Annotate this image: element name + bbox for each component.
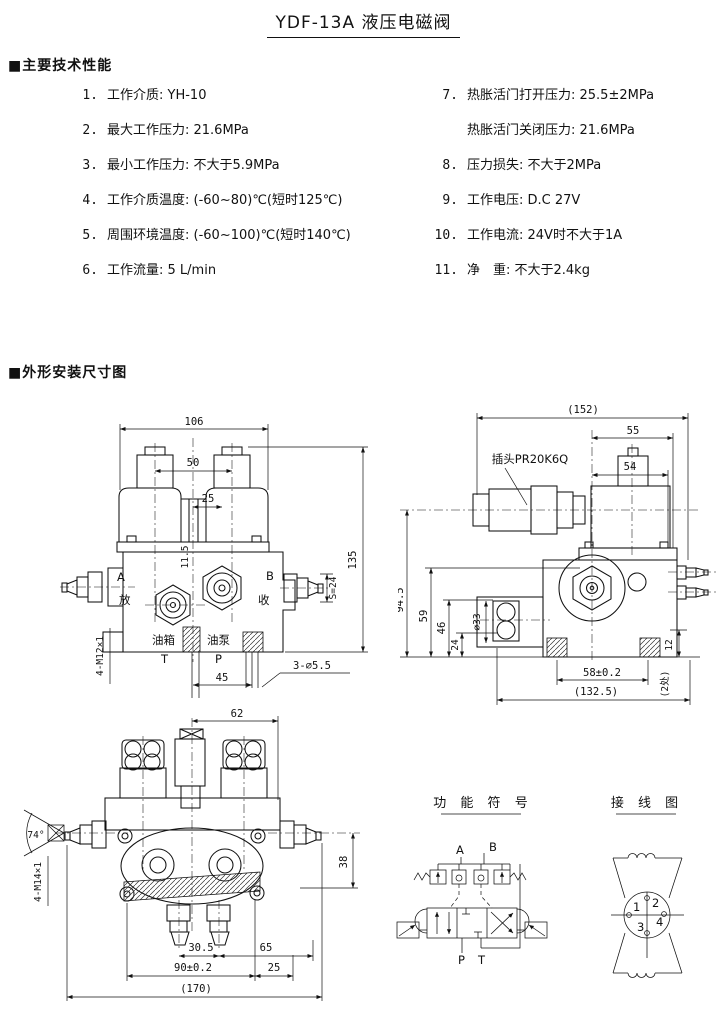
spec-item: 6.工作流量: 5 L/min	[72, 263, 412, 298]
dim-94-5: 94.5	[398, 587, 406, 612]
symbol-a-label: A	[456, 843, 464, 857]
port-b-label: B	[266, 569, 274, 583]
side-view-drawing: (152) 55 54 插头PR20K6Q 94.5 59 46 24 ∅33 …	[398, 395, 727, 707]
dim-90: 90±0.2	[174, 962, 212, 974]
symbol-p-label: P	[458, 953, 465, 967]
pin-3-label: 3	[637, 920, 644, 934]
specs-section-header: ■主要技术性能	[8, 55, 112, 75]
dim-thread-m14: 4-M14×1	[33, 862, 44, 902]
right-fittings	[677, 566, 708, 599]
pin-2-label: 2	[652, 896, 659, 910]
pilot-lines	[450, 884, 492, 908]
coil-symbols	[613, 854, 682, 978]
plug-label: 插头PR20K6Q	[492, 452, 568, 466]
wiring-diagram-drawing: 接 线 图 1 2 3 4	[595, 790, 727, 995]
dim-65: 65	[260, 942, 273, 954]
dim-11-5: 11.5	[180, 546, 191, 569]
spec-item: 9.工作电压: D.C 27V	[432, 193, 722, 228]
spec-list-right: 7.热胀活门打开压力: 25.5±2MPa 热胀活门关闭压力: 21.6MPa …	[432, 88, 722, 298]
dim-132-5: (132.5)	[574, 686, 618, 698]
dim-33: ∅33	[472, 613, 483, 630]
dim-s24: S=24	[328, 576, 339, 599]
spec-item: 4.工作介质温度: (-60~80)℃(短时125℃)	[72, 193, 412, 228]
dim-30-5: 30.5	[188, 942, 213, 954]
valve-body-outline	[103, 447, 295, 652]
dim-170: (170)	[180, 983, 212, 995]
pin-4-label: 4	[656, 915, 663, 929]
function-symbol-title: 功 能 符 号	[433, 795, 532, 811]
spec-item: 10.工作电流: 24V时不大于1A	[432, 228, 722, 263]
dim-38: 38	[338, 856, 350, 869]
dim-25b: 25	[268, 962, 281, 974]
spec-item: 热胀活门关闭压力: 21.6MPa	[432, 123, 722, 158]
side-dimensions: (152) 55 54 插头PR20K6Q 94.5 59 46 24 ∅33 …	[398, 404, 690, 705]
wiring-title: 接 线 图	[611, 795, 683, 811]
dim-50: 50	[187, 457, 200, 469]
port-fang-label: 放	[119, 593, 131, 607]
dim-thread-m12: 4-M12×1	[95, 636, 106, 676]
dim-74deg: 74°	[27, 830, 44, 841]
spec-list-left: 1.工作介质: YH-10 2.最大工作压力: 21.6MPa 3.最小工作压力…	[72, 88, 412, 298]
spec-item: 7.热胀活门打开压力: 25.5±2MPa	[432, 88, 722, 123]
hex-nuts-top	[120, 740, 267, 798]
symbol-t-label: T	[477, 953, 486, 967]
dim-152: (152)	[567, 404, 599, 416]
spec-item: 8.压力损失: 不大于2MPa	[432, 158, 722, 193]
pilot-valve-block	[414, 853, 526, 948]
dim-45: 45	[216, 672, 229, 684]
directional-valve	[397, 908, 547, 953]
dims-section-header: ■外形安装尺寸图	[8, 362, 127, 382]
port-shou-label: 收	[258, 593, 270, 607]
side-fittings	[65, 821, 321, 848]
spec-item: 2.最大工作压力: 21.6MPa	[72, 123, 412, 158]
symbol-b-label: B	[489, 840, 497, 854]
dim-59: 59	[418, 610, 430, 623]
dim-55: 55	[627, 425, 640, 437]
bottom-fittings	[167, 905, 230, 945]
mount-feet	[400, 638, 700, 657]
tank-label: 油箱	[152, 633, 175, 647]
port-t-label: T	[160, 652, 169, 666]
bottom-view-drawing: 62 74° 4-M14×1 38 30.5 65 90±0.2 25 (170…	[15, 705, 370, 1005]
datasheet-page: YDF-13A 液压电磁阀 ■主要技术性能 1.工作介质: YH-10 2.最大…	[0, 0, 727, 1010]
port-a-label: A	[117, 570, 125, 584]
spec-item: 5.周围环境温度: (-60~100)℃(短时140℃)	[72, 228, 412, 263]
dim-12: 12	[664, 639, 675, 650]
spec-item: 1.工作介质: YH-10	[72, 88, 412, 123]
pin-1-label: 1	[633, 900, 640, 914]
connector-face	[611, 892, 684, 958]
dim-25: 25	[202, 493, 215, 505]
dim-58: 58±0.2	[583, 667, 621, 679]
page-title-text: YDF-13A 液压电磁阀	[267, 8, 459, 38]
dim-2places: (2处)	[659, 671, 671, 698]
spec-item: 11.净 重: 不大于2.4kg	[432, 263, 722, 298]
spec-item: 3.最小工作压力: 不大于5.9MPa	[72, 158, 412, 193]
dim-62: 62	[231, 708, 244, 720]
bottom-dimensions: 62 74° 4-M14×1 38 30.5 65 90±0.2 25 (170…	[27, 708, 358, 1001]
pump-label: 油泵	[207, 633, 230, 647]
center-stem	[175, 729, 205, 808]
dim-24: 24	[450, 639, 461, 651]
dim-46: 46	[436, 622, 448, 635]
front-view-drawing: 106 50 25 45 135 11.5 S=24 3-∅5.5 4-M12×…	[55, 395, 400, 707]
dim-3-holes: 3-∅5.5	[293, 660, 331, 672]
port-bosses	[156, 566, 241, 625]
port-p-label: P	[215, 652, 222, 666]
dim-54: 54	[624, 461, 637, 473]
page-title: YDF-13A 液压电磁阀	[0, 8, 727, 38]
function-symbol-drawing: 功 能 符 号 A B	[395, 790, 570, 970]
dim-106: 106	[185, 416, 204, 428]
dim-135: 135	[347, 551, 359, 570]
